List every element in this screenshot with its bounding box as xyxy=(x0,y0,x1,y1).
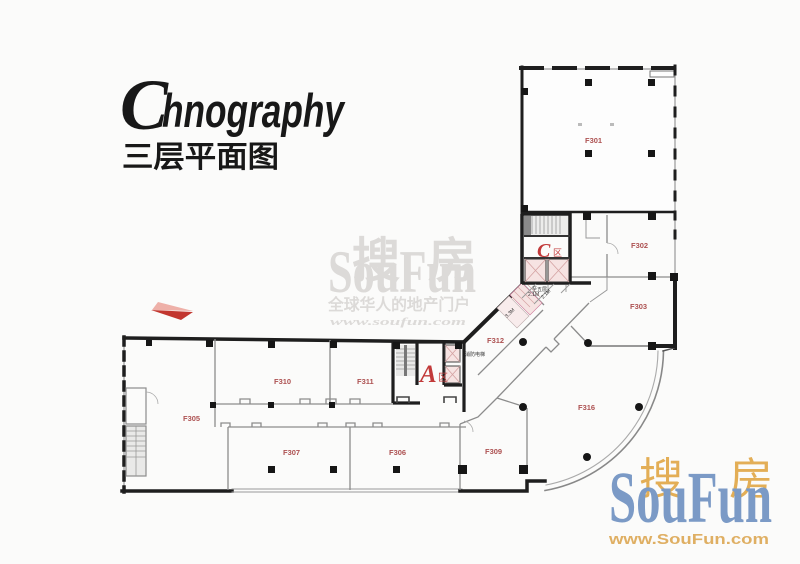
svg-text:F303: F303 xyxy=(630,302,647,311)
svg-text:F307: F307 xyxy=(283,448,300,457)
svg-text:搜: 搜 xyxy=(352,235,400,288)
svg-text:F316: F316 xyxy=(578,403,595,412)
svg-text:房: 房 xyxy=(428,235,476,288)
svg-text:F309: F309 xyxy=(485,447,502,456)
svg-text:F305: F305 xyxy=(183,414,200,423)
svg-text:www.soufun.com: www.soufun.com xyxy=(330,316,467,328)
svg-text:hnography: hnography xyxy=(162,84,346,137)
svg-text:F310: F310 xyxy=(274,377,291,386)
svg-text:SouFun: SouFun xyxy=(609,457,772,538)
svg-text:F312: F312 xyxy=(487,336,504,345)
svg-text:消防电梯: 消防电梯 xyxy=(465,351,485,358)
svg-text:F301: F301 xyxy=(585,136,602,145)
svg-text:全球华人的地产门户: 全球华人的地产门户 xyxy=(327,295,470,314)
svg-text:区: 区 xyxy=(438,372,448,384)
svg-text:www.SouFun.com: www.SouFun.com xyxy=(608,531,769,548)
svg-text:A: A xyxy=(418,361,437,388)
svg-text:F306: F306 xyxy=(389,448,406,457)
svg-text:至五层: 至五层 xyxy=(532,287,547,293)
svg-text:三层平面图: 三层平面图 xyxy=(122,141,279,174)
svg-text:F302: F302 xyxy=(631,241,648,250)
svg-text:C: C xyxy=(537,240,551,262)
svg-text:区: 区 xyxy=(553,248,562,258)
svg-text:F311: F311 xyxy=(357,377,374,386)
